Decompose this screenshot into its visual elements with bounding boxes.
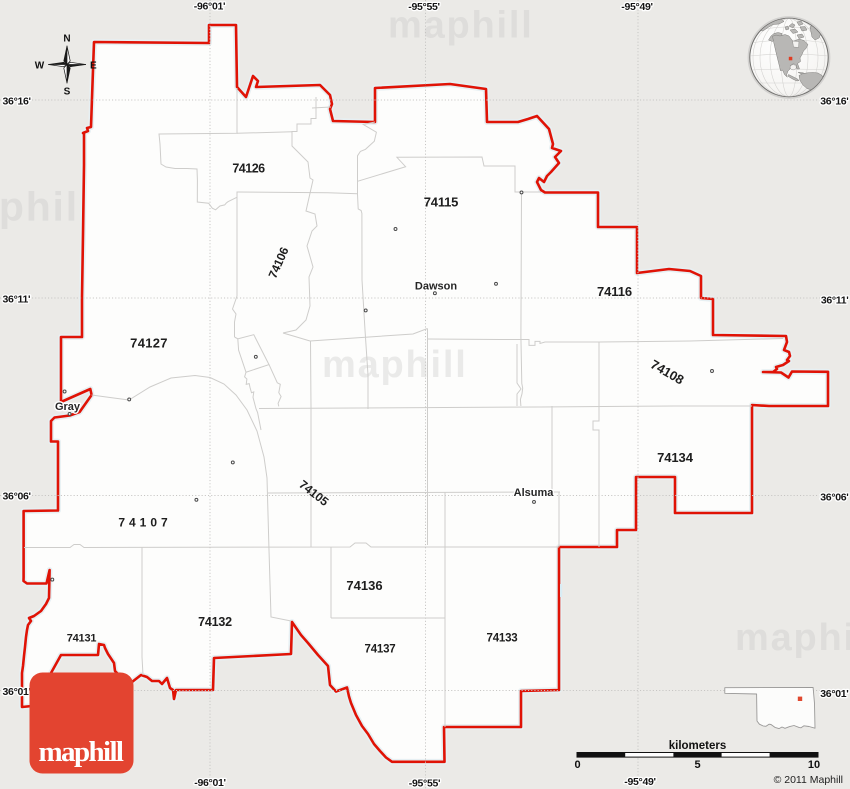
svg-text:74136: 74136: [346, 578, 382, 593]
svg-text:Alsuma: Alsuma: [514, 487, 555, 499]
svg-text:36°06': 36°06': [3, 491, 31, 503]
svg-text:-95°55': -95°55': [409, 778, 440, 789]
svg-text:36°01': 36°01': [3, 686, 31, 698]
svg-text:© 2011 Maphill: © 2011 Maphill: [774, 774, 843, 786]
svg-text:N: N: [63, 33, 70, 44]
svg-text:74107: 74107: [118, 516, 171, 530]
svg-text:74126: 74126: [232, 162, 265, 176]
svg-text:W: W: [35, 60, 45, 71]
svg-text:10: 10: [808, 759, 820, 771]
svg-text:5: 5: [694, 759, 700, 771]
svg-text:36°16': 36°16': [820, 96, 848, 108]
svg-text:74131: 74131: [67, 633, 97, 645]
svg-text:74132: 74132: [198, 615, 232, 629]
svg-text:maphill: maphill: [0, 184, 92, 230]
svg-text:36°16': 36°16': [3, 96, 31, 108]
svg-text:Dawson: Dawson: [415, 281, 457, 293]
svg-text:0: 0: [574, 759, 580, 771]
svg-text:74127: 74127: [130, 336, 168, 351]
svg-text:maphill: maphill: [735, 617, 850, 659]
svg-text:74115: 74115: [424, 195, 458, 210]
svg-text:E: E: [90, 60, 97, 71]
svg-text:kilometers: kilometers: [669, 740, 727, 752]
svg-text:74116: 74116: [597, 284, 632, 299]
svg-text:Gray: Gray: [55, 401, 81, 413]
svg-text:maphill: maphill: [322, 344, 468, 386]
svg-text:-95°55': -95°55': [408, 1, 439, 13]
svg-text:S: S: [64, 87, 71, 98]
svg-text:36°11': 36°11': [821, 295, 849, 307]
svg-text:-96°01': -96°01': [194, 1, 225, 13]
svg-text:74134: 74134: [657, 450, 694, 465]
svg-text:36°06': 36°06': [820, 492, 848, 504]
svg-text:maphill: maphill: [39, 736, 124, 768]
svg-text:-96°01': -96°01': [194, 777, 225, 789]
svg-text:74133: 74133: [487, 633, 518, 645]
svg-text:36°11': 36°11': [3, 294, 31, 306]
svg-text:74137: 74137: [365, 644, 396, 656]
svg-text:-95°49': -95°49': [621, 1, 652, 13]
svg-text:36°01': 36°01': [820, 688, 848, 700]
svg-text:-95°49': -95°49': [624, 776, 655, 788]
